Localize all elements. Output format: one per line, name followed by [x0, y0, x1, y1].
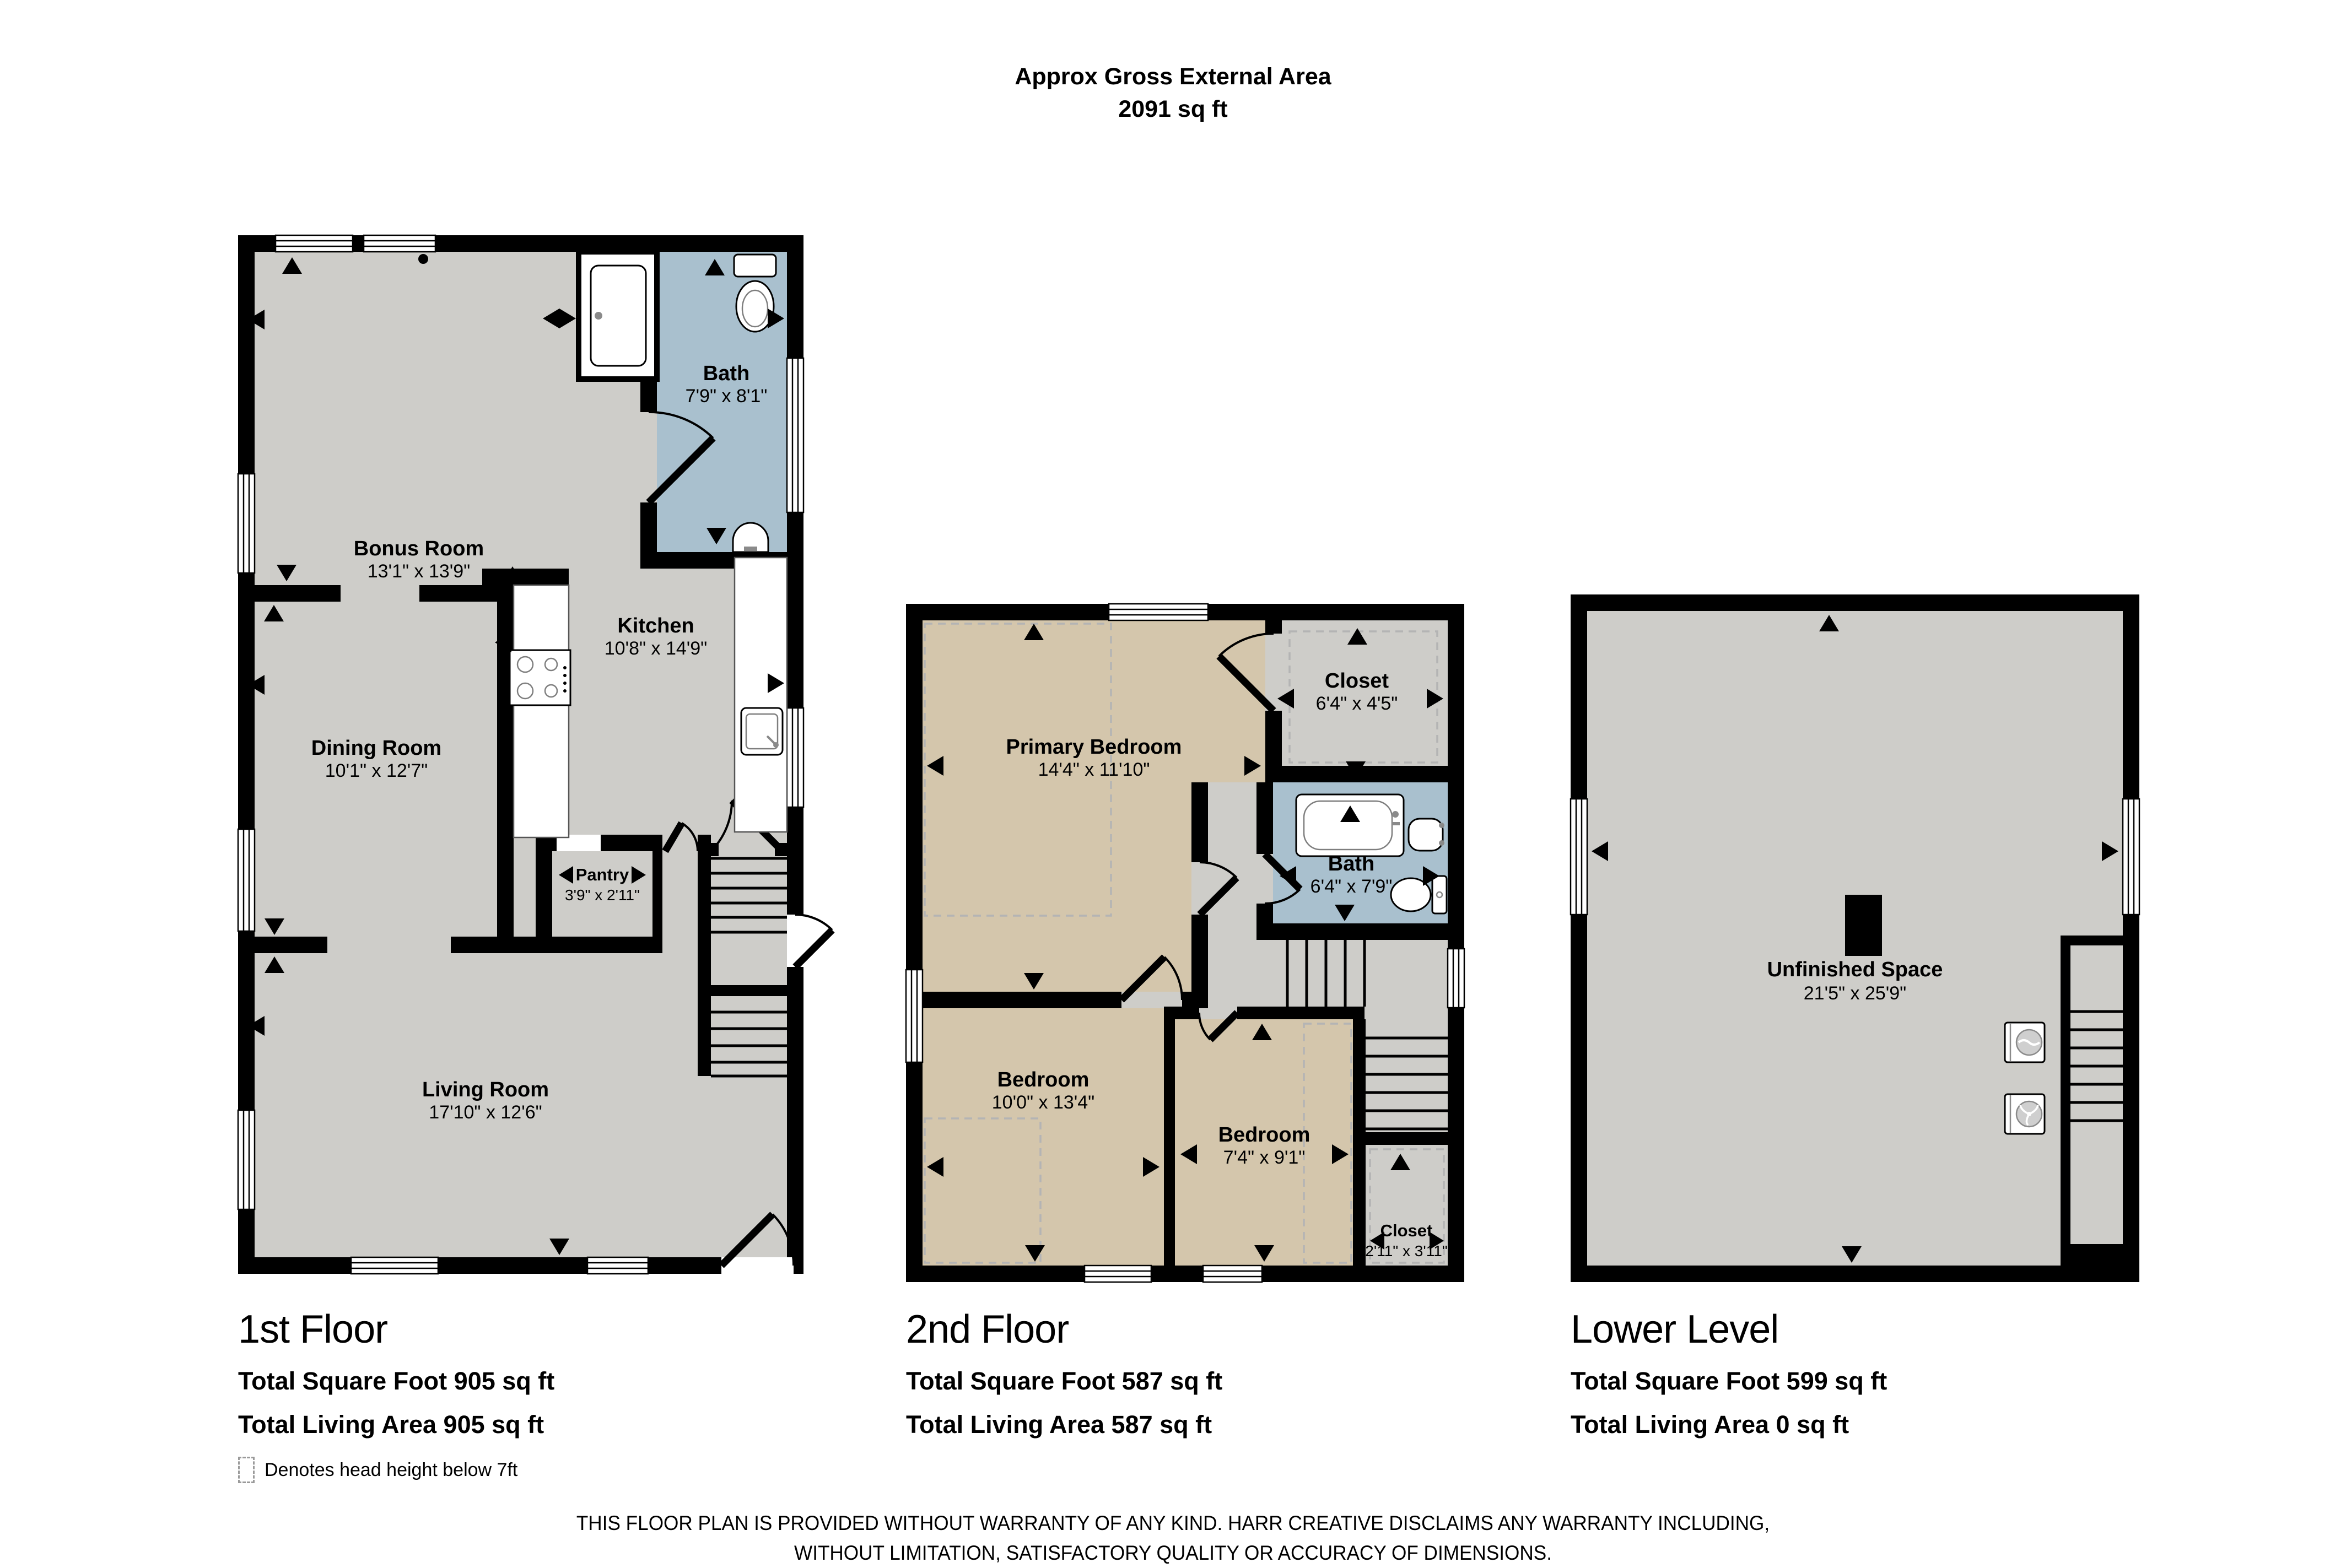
room-label-bath1: Bath: [703, 362, 749, 385]
first-floor-title: 1st Floor: [238, 1307, 554, 1352]
lower-level-plan: Unfinished Space 21'5" x 25'9": [1571, 594, 2139, 1282]
toilet-icon-bath2: [1391, 876, 1447, 913]
lower-level-living: Total Living Area 0 sq ft: [1571, 1410, 1887, 1439]
room-label-primary-bedroom: Primary Bedroom: [1006, 736, 1182, 759]
first-floor-sqft: Total Square Foot 905 sq ft: [238, 1367, 554, 1396]
disclaimer-line1: THIS FLOOR PLAN IS PROVIDED WITHOUT WARR…: [58, 1508, 2287, 1538]
second-floor-living: Total Living Area 587 sq ft: [906, 1410, 1222, 1439]
room-dims-bath1: 7'9" x 8'1": [686, 386, 768, 407]
room-label-unfinished: Unfinished Space: [1767, 958, 1943, 981]
room-label-bedroom1: Bedroom: [997, 1068, 1090, 1091]
first-floor-caption: 1st Floor Total Square Foot 905 sq ft To…: [238, 1307, 554, 1439]
room-dims-dining: 10'1" x 12'7": [325, 760, 428, 781]
second-floor-sqft: Total Square Foot 587 sq ft: [906, 1367, 1222, 1396]
room-dims-unfinished: 21'5" x 25'9": [1804, 983, 1906, 1004]
first-floor-living: Total Living Area 905 sq ft: [238, 1410, 554, 1439]
room-dims-kitchen: 10'8" x 14'9": [605, 638, 707, 659]
room-dims-closet2: 2'11" x 3'11": [1365, 1242, 1447, 1259]
room-dims-primary-bedroom: 14'4" x 11'10": [1038, 759, 1150, 780]
lower-level-sqft: Total Square Foot 599 sq ft: [1571, 1367, 1887, 1396]
first-floor-plan: Bonus Room 13'1" x 13'9" Bath 7'9" x 8'1…: [238, 235, 832, 1274]
lower-level-title: Lower Level: [1571, 1307, 1887, 1352]
room-dims-bedroom1: 10'0" x 13'4": [992, 1092, 1094, 1113]
legend-text: Denotes head height below 7ft: [265, 1459, 517, 1481]
cooktop-icon: [510, 650, 570, 705]
room-dims-pantry: 3'9" x 2'11": [565, 886, 640, 904]
lower-level-caption: Lower Level Total Square Foot 599 sq ft …: [1571, 1307, 1887, 1439]
room-dims-bedroom2: 7'4" x 9'1": [1223, 1147, 1306, 1168]
chimney: [1845, 895, 1882, 956]
shower-icon: [579, 252, 657, 379]
kitchen-counter: [735, 558, 787, 832]
head-height-swatch-icon: [238, 1457, 255, 1483]
kitchen-peninsula-counter: [514, 585, 569, 837]
room-label-kitchen: Kitchen: [617, 614, 694, 637]
room-label-bath2: Bath: [1328, 852, 1374, 875]
second-floor-caption: 2nd Floor Total Square Foot 587 sq ft To…: [906, 1307, 1222, 1439]
second-floor-title: 2nd Floor: [906, 1307, 1222, 1352]
room-dims-closet1: 6'4" x 4'5": [1316, 693, 1398, 714]
primary-bedroom-floor-b: [923, 620, 1191, 992]
sink-icon-bath1: [733, 523, 768, 552]
washer-icon: [2005, 1023, 2045, 1062]
room-label-pantry: Pantry: [576, 865, 629, 884]
room-label-closet1: Closet: [1325, 669, 1389, 693]
room-label-living: Living Room: [422, 1078, 549, 1101]
legend: Denotes head height below 7ft: [238, 1457, 517, 1483]
room-dims-bonus-room: 13'1" x 13'9": [368, 561, 470, 582]
room-label-closet2: Closet: [1380, 1221, 1433, 1240]
room-label-dining: Dining Room: [311, 737, 441, 760]
room-dims-bath2: 6'4" x 7'9": [1310, 876, 1393, 897]
bathtub-icon: [1296, 794, 1404, 856]
second-floor-plan: Primary Bedroom 14'4" x 11'10" Closet 6'…: [906, 604, 1464, 1282]
room-label-bonus-room: Bonus Room: [354, 537, 484, 560]
sink-icon-bath2: [1409, 819, 1444, 851]
dryer-icon: [2005, 1094, 2045, 1134]
disclaimer: THIS FLOOR PLAN IS PROVIDED WITHOUT WARR…: [58, 1508, 2287, 1568]
room-label-bedroom2: Bedroom: [1218, 1123, 1310, 1147]
room-dims-living: 17'10" x 12'6": [429, 1102, 542, 1123]
kitchen-sink-icon: [741, 708, 783, 755]
bedroom1-floor: [923, 1008, 1164, 1266]
